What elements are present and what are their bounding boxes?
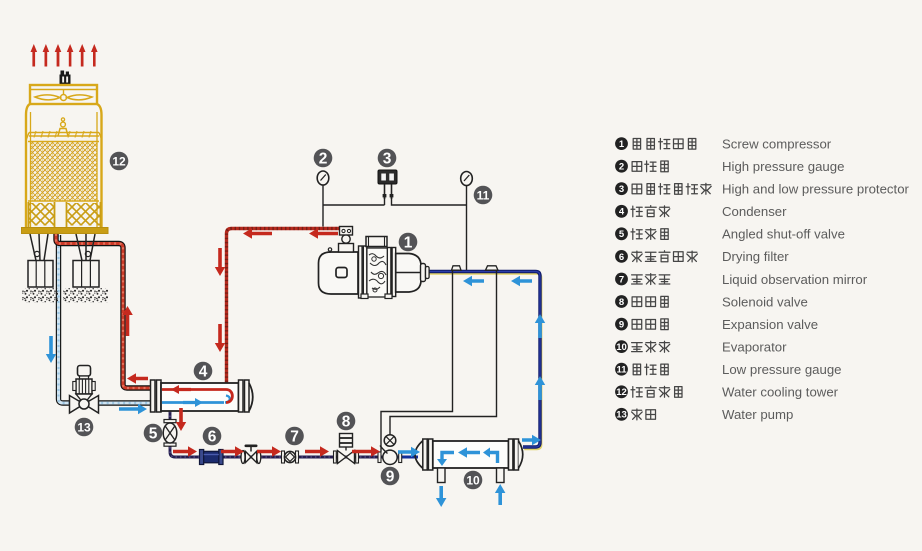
svg-text:9: 9: [619, 320, 624, 331]
svg-text:Liquid observation mirror: Liquid observation mirror: [722, 272, 868, 287]
svg-text:12: 12: [616, 387, 627, 398]
svg-text:10: 10: [616, 342, 627, 353]
svg-text:6: 6: [208, 429, 217, 446]
svg-text:11: 11: [616, 365, 627, 376]
svg-text:Solenoid valve: Solenoid valve: [722, 294, 808, 309]
svg-text:7: 7: [619, 274, 624, 285]
svg-text:5: 5: [619, 229, 625, 240]
svg-text:1: 1: [404, 235, 413, 252]
svg-text:13: 13: [77, 420, 91, 434]
svg-text:8: 8: [619, 297, 624, 308]
svg-text:9: 9: [386, 469, 395, 486]
svg-text:4: 4: [619, 207, 625, 218]
svg-text:2: 2: [319, 151, 328, 168]
svg-text:8: 8: [342, 414, 351, 431]
svg-text:3: 3: [619, 184, 624, 195]
svg-text:12: 12: [112, 154, 126, 168]
svg-text:Screw compressor: Screw compressor: [722, 136, 832, 151]
svg-text:Drying filter: Drying filter: [722, 249, 789, 264]
svg-text:11: 11: [477, 188, 490, 202]
svg-text:Water cooling tower: Water cooling tower: [722, 385, 839, 400]
svg-text:10: 10: [466, 473, 480, 487]
svg-text:6: 6: [619, 252, 624, 263]
svg-text:7: 7: [290, 429, 299, 446]
svg-text:Evaporator: Evaporator: [722, 339, 787, 354]
svg-text:Condenser: Condenser: [722, 204, 787, 219]
svg-text:Water pump: Water pump: [722, 407, 793, 422]
svg-text:13: 13: [616, 410, 627, 421]
svg-text:2: 2: [619, 162, 624, 173]
svg-text:High pressure gauge: High pressure gauge: [722, 159, 844, 174]
svg-text:Expansion valve: Expansion valve: [722, 317, 818, 332]
svg-text:1: 1: [619, 139, 625, 150]
svg-text:High and low pressure protecto: High and low pressure protector: [722, 182, 910, 197]
svg-text:3: 3: [383, 151, 392, 168]
svg-text:5: 5: [149, 426, 158, 443]
svg-text:Low pressure gauge: Low pressure gauge: [722, 362, 842, 377]
svg-text:Angled shut-off valve: Angled shut-off valve: [722, 227, 845, 242]
svg-text:4: 4: [199, 364, 208, 381]
